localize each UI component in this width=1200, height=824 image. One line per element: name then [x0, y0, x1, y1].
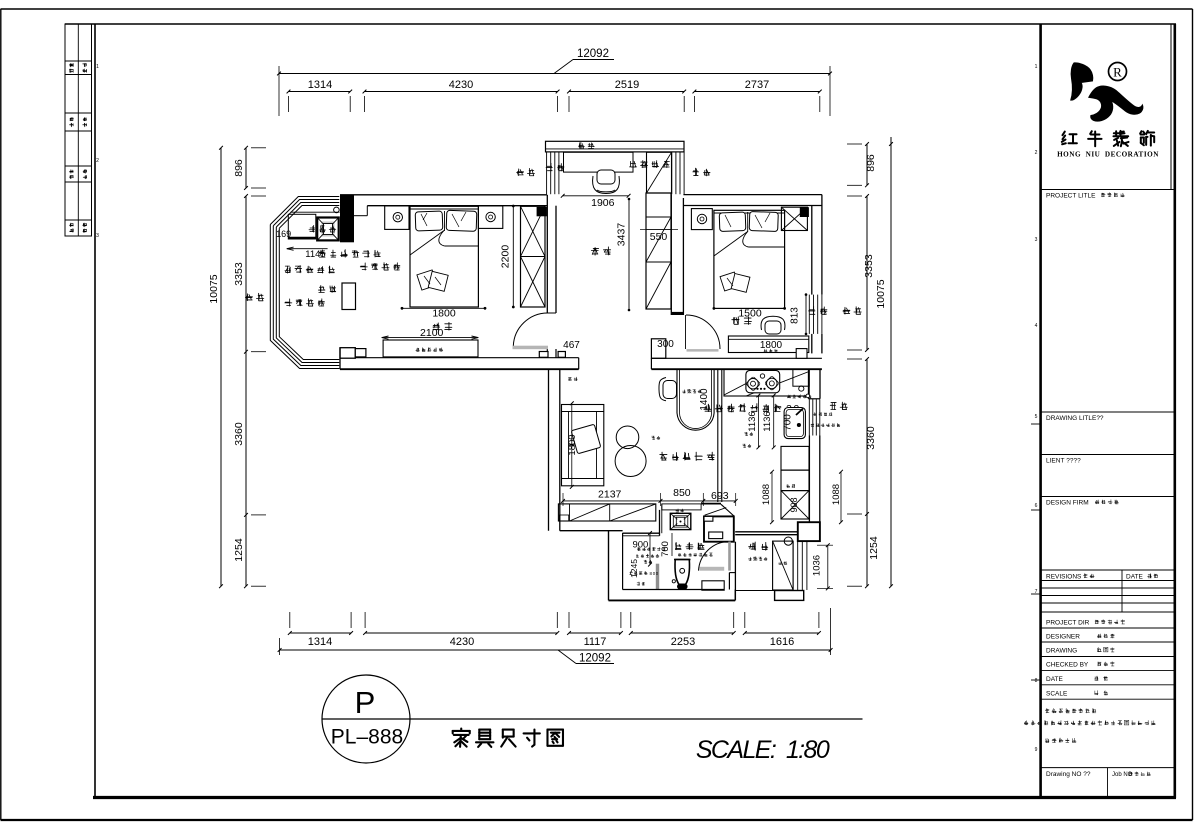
svg-text:PL–888: PL–888: [331, 726, 403, 749]
svg-text:10075: 10075: [208, 274, 220, 303]
svg-text:3353: 3353: [863, 254, 875, 278]
svg-text:1117: 1117: [584, 636, 607, 648]
svg-text:1036: 1036: [812, 555, 823, 576]
svg-text:2137: 2137: [598, 488, 622, 500]
svg-text:1088: 1088: [761, 484, 772, 505]
svg-text:1: 1: [1035, 64, 1038, 70]
svg-text:896: 896: [865, 154, 877, 172]
svg-text:693: 693: [711, 490, 729, 502]
svg-text:PROJECT DIR: PROJECT DIR: [1046, 620, 1090, 627]
svg-text:DATE: DATE: [1126, 574, 1144, 581]
svg-text:1314: 1314: [308, 636, 332, 648]
svg-text:813: 813: [790, 307, 801, 324]
svg-text:169: 169: [276, 229, 291, 239]
svg-text:DRAWING LITLE??: DRAWING LITLE??: [1046, 415, 1104, 422]
svg-text:HONG NIU DECORATION: HONG NIU DECORATION: [1057, 151, 1159, 159]
svg-text:3437: 3437: [616, 223, 628, 247]
svg-text:700: 700: [782, 414, 793, 431]
svg-text:3360: 3360: [233, 422, 245, 446]
svg-text:4230: 4230: [449, 79, 473, 91]
svg-text:P: P: [355, 685, 376, 720]
svg-text:2253: 2253: [671, 636, 695, 648]
svg-text:REVISIONS: REVISIONS: [1046, 574, 1082, 581]
svg-text:700: 700: [660, 541, 671, 557]
svg-text:1254: 1254: [868, 536, 880, 560]
svg-text:1254: 1254: [233, 538, 245, 562]
svg-text:R: R: [1113, 65, 1122, 80]
svg-text:SCALE: 1:80: SCALE: 1:80: [696, 736, 830, 764]
svg-text:12092: 12092: [579, 653, 611, 665]
svg-text:1245: 1245: [629, 559, 639, 578]
svg-text:1136: 1136: [762, 411, 773, 431]
svg-text:DESIGNER: DESIGNER: [1046, 634, 1080, 641]
svg-text:1800: 1800: [760, 340, 783, 351]
svg-text:3360: 3360: [865, 426, 877, 450]
svg-text:850: 850: [673, 487, 691, 499]
svg-text:908: 908: [789, 497, 799, 512]
svg-text:550: 550: [650, 231, 668, 243]
svg-text:1136: 1136: [747, 411, 758, 431]
svg-text:3: 3: [1035, 237, 1038, 243]
svg-text:1800: 1800: [567, 434, 578, 455]
svg-text:4: 4: [1035, 323, 1038, 329]
svg-text:2737: 2737: [745, 79, 769, 91]
svg-text:1088: 1088: [831, 484, 842, 505]
svg-text:896: 896: [233, 159, 245, 177]
svg-text:4230: 4230: [450, 636, 474, 648]
svg-text:CHECKED BY: CHECKED BY: [1046, 662, 1089, 669]
svg-text:2: 2: [96, 158, 99, 164]
svg-text:DATE: DATE: [1046, 676, 1064, 683]
svg-text:SCALE: SCALE: [1046, 691, 1068, 698]
svg-text:DESIGN FIRM: DESIGN FIRM: [1046, 500, 1089, 507]
svg-text:2100: 2100: [420, 327, 444, 339]
svg-text:12092: 12092: [577, 48, 609, 60]
svg-text:467: 467: [563, 340, 580, 351]
svg-text:1906: 1906: [591, 197, 615, 209]
svg-text:2: 2: [1035, 150, 1038, 156]
svg-text:1616: 1616: [770, 636, 794, 648]
svg-text:2200: 2200: [500, 245, 512, 269]
svg-text:6: 6: [1035, 503, 1038, 509]
svg-text:3353: 3353: [233, 262, 245, 286]
svg-text:Job NO: Job NO: [1112, 772, 1133, 778]
svg-text:900: 900: [632, 540, 648, 551]
svg-text:1314: 1314: [308, 79, 332, 91]
svg-text:9: 9: [1035, 747, 1038, 753]
svg-text:1: 1: [96, 64, 99, 70]
svg-text:1800: 1800: [432, 307, 456, 319]
svg-text:2519: 2519: [615, 79, 639, 91]
svg-text:PROJECT LITLE: PROJECT LITLE: [1046, 193, 1096, 200]
svg-text:Drawing NO ??: Drawing NO ??: [1046, 771, 1091, 778]
svg-text:7: 7: [1035, 589, 1038, 595]
svg-text:3: 3: [96, 233, 99, 239]
svg-text:LIENT ????: LIENT ????: [1046, 458, 1081, 465]
svg-text:10075: 10075: [875, 279, 887, 308]
svg-text:8: 8: [1035, 678, 1038, 684]
svg-text:DRAWING: DRAWING: [1046, 648, 1077, 655]
svg-text:5: 5: [1035, 414, 1038, 420]
